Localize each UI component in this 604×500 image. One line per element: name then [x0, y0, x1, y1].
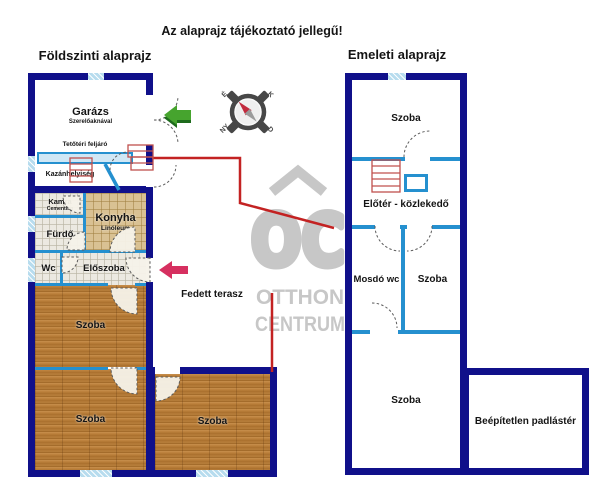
room-upper-small-label: Szoba	[418, 274, 447, 286]
room-bathroom-label: Fürdő	[47, 229, 74, 240]
room-szoba1-label: Szoba	[76, 320, 105, 332]
room-upper-top-label: Szoba	[391, 113, 420, 125]
partition-wall	[35, 250, 146, 253]
room-attic-label: Beépítetlen padlástér	[475, 416, 576, 428]
floor-plan-canvas: OC OTTHON CENTRUM Az alaprajz tájékoztat…	[0, 0, 604, 500]
entrance-door-opening	[146, 258, 153, 282]
partition-wall	[352, 157, 405, 161]
garage-corridor	[37, 152, 133, 164]
room-bathroom: Fürdő	[35, 217, 85, 252]
room-szoba1: Szoba	[35, 285, 146, 367]
window	[88, 73, 104, 80]
hallway-label: Előtér - közlekedő	[352, 199, 460, 211]
room-kitchen-sublabel: Linóleum	[101, 225, 130, 233]
partition-wall	[35, 367, 108, 370]
attic-stairs-label: Tetőtéri feljáró	[50, 141, 120, 149]
room-szoba2: Szoba	[35, 369, 146, 470]
wall	[28, 186, 153, 193]
upper-floor-plan: Szoba Előtér - közlekedő Mosdó wc Szoba …	[345, 70, 595, 480]
upper-floor-title: Emeleti alaprajz	[330, 47, 464, 62]
room-upper-small: Szoba	[405, 229, 460, 330]
room-washroom: Mosdó wc	[352, 229, 401, 330]
room-szoba3-label: Szoba	[198, 416, 227, 428]
window	[80, 470, 112, 477]
room-pantry-sublabel: Cementlap	[47, 206, 74, 212]
terrace-area: Fedett terasz	[152, 288, 272, 302]
stair-landing	[404, 174, 428, 192]
partition-wall	[432, 225, 460, 229]
room-hall: Előszoba	[62, 252, 146, 285]
terrace-label: Fedett terasz	[181, 289, 243, 301]
window	[28, 258, 35, 282]
partition-wall	[83, 193, 86, 253]
room-garage-sublabel: Szerelőaknával	[69, 119, 112, 126]
room-upper-large-label: Szoba	[391, 395, 420, 407]
room-pantry: Kamra Cementlap	[35, 193, 85, 217]
partition-wall	[135, 283, 146, 286]
room-kitchen-label: Konyha	[95, 212, 135, 225]
logo-roof-icon	[272, 171, 324, 192]
partition-wall	[135, 367, 146, 370]
partition-wall	[401, 229, 405, 330]
partition-wall	[430, 157, 460, 161]
szoba3-door-opening	[155, 367, 180, 374]
partition-wall	[352, 225, 375, 229]
room-wc-label: Wc	[41, 263, 55, 274]
garage-door-opening	[146, 95, 153, 145]
ground-floor-title: Földszinti alaprajz	[28, 48, 162, 63]
room-boiler: Kazánhelyiség	[35, 164, 105, 186]
room-upper-large: Szoba	[352, 334, 460, 468]
room-kitchen: Konyha Linóleum	[85, 193, 146, 252]
window	[28, 216, 35, 232]
partition-wall	[398, 330, 460, 334]
partition-wall	[35, 215, 85, 218]
partition-wall	[352, 330, 370, 334]
window	[196, 470, 228, 477]
room-attic: Beépítetlen padlástér	[469, 375, 582, 468]
room-garage-label: Garázs	[72, 106, 109, 119]
room-szoba3: Szoba	[155, 374, 270, 470]
room-hall-label: Előszoba	[83, 263, 125, 274]
partition-wall	[35, 283, 108, 286]
room-boiler-label: Kazánhelyiség	[46, 171, 95, 179]
room-szoba2-label: Szoba	[76, 414, 105, 426]
room-washroom-label: Mosdó wc	[354, 274, 400, 285]
ground-floor-plan: Garázs Szerelőaknával Tetőtéri feljáró K…	[28, 70, 278, 480]
room-upper-top: Szoba	[352, 80, 460, 157]
room-wc: Wc	[35, 252, 62, 285]
side-door-opening	[146, 165, 153, 187]
disclaimer-title: Az alaprajz tájékoztató jellegű!	[100, 24, 404, 38]
partition-wall	[60, 253, 63, 285]
window	[388, 73, 406, 80]
window	[28, 156, 35, 172]
